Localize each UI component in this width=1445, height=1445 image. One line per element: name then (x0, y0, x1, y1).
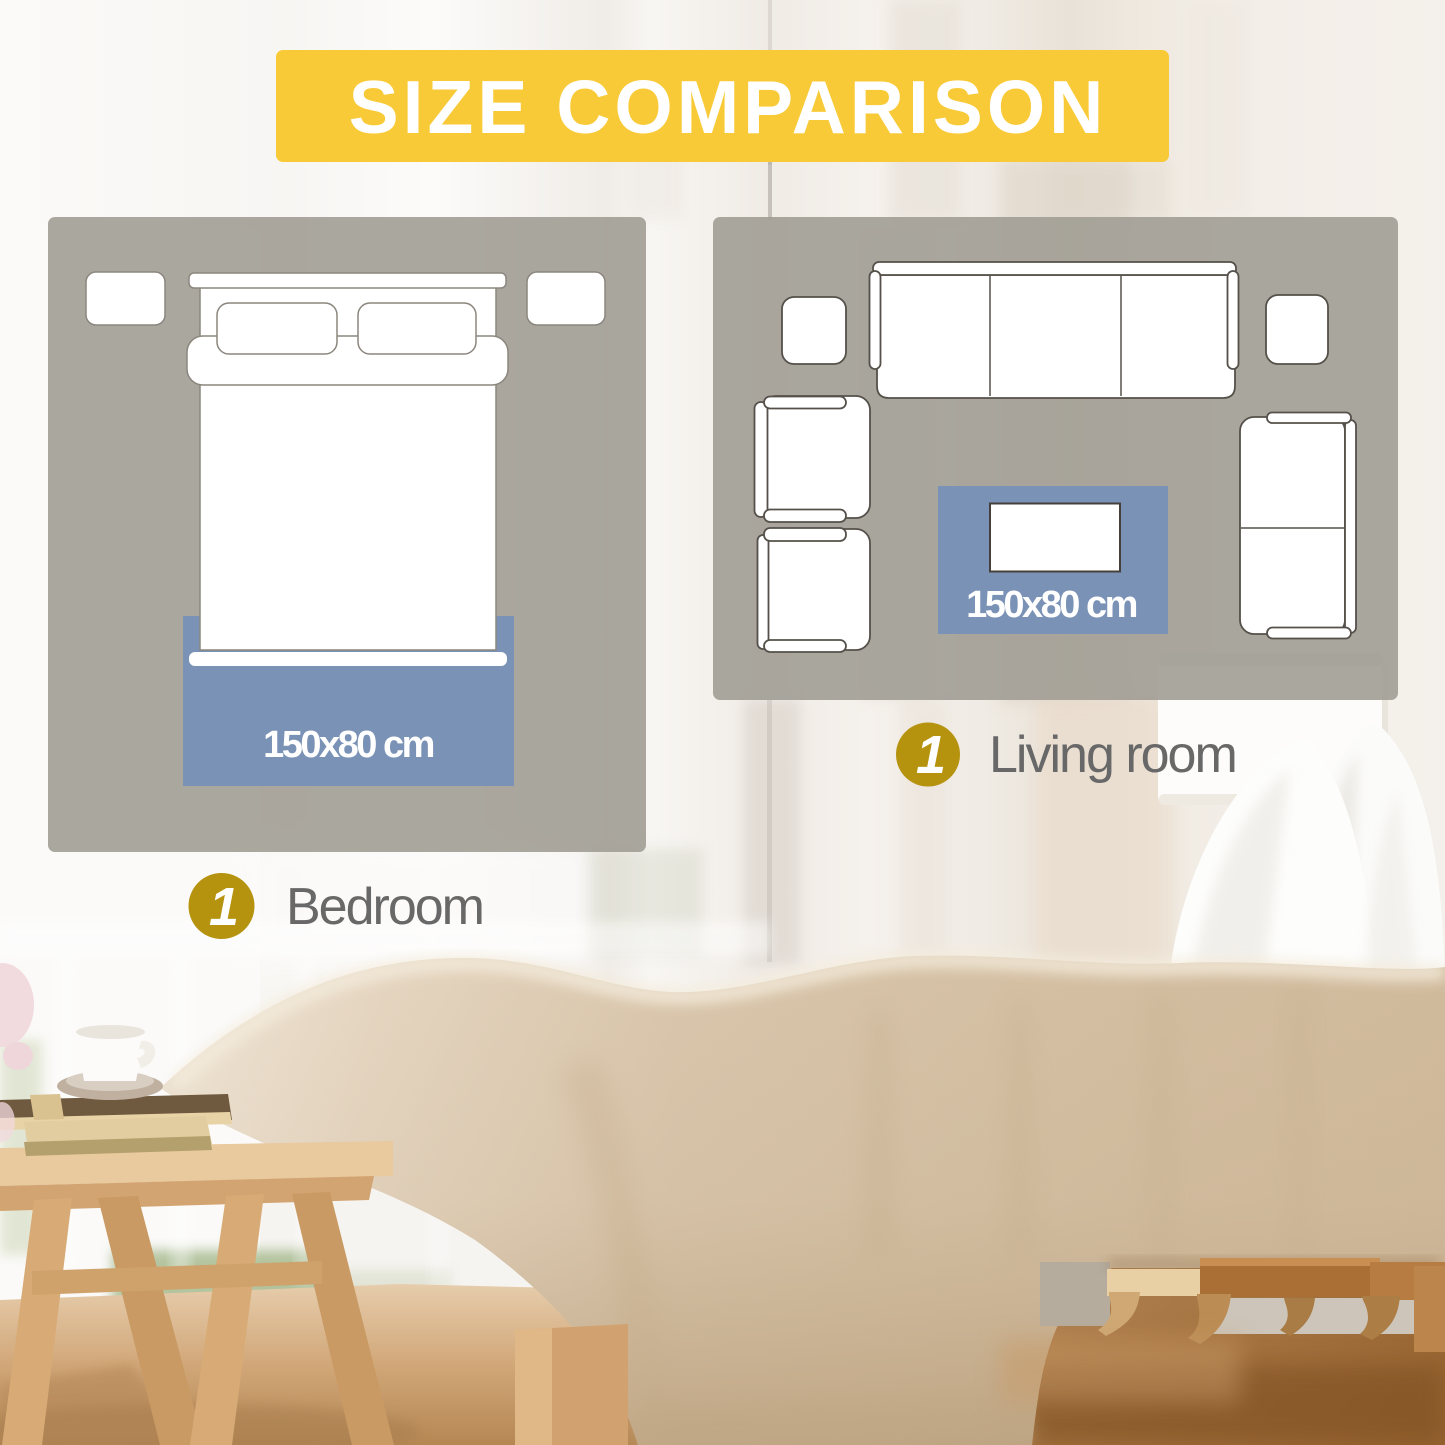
svg-text:150x80 cm: 150x80 cm (966, 584, 1136, 626)
svg-text:Living room: Living room (989, 726, 1236, 784)
svg-text:SIZE COMPARISON: SIZE COMPARISON (349, 65, 1108, 149)
svg-text:150x80 cm: 150x80 cm (263, 724, 433, 766)
svg-text:Bedroom: Bedroom (286, 878, 483, 936)
svg-text:1: 1 (916, 725, 946, 785)
svg-text:1: 1 (209, 877, 239, 937)
